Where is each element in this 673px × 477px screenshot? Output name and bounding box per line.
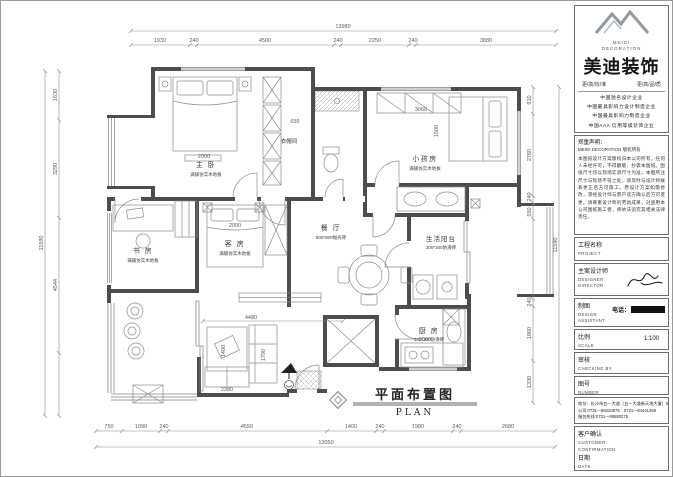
number-label-en: NUMBER [578,390,599,396]
phone-label: 电话： [612,305,630,314]
svg-text:910: 910 [527,95,533,104]
brand-en-line2: DECORATION [602,46,642,51]
room-cloak: 衣帽间 [281,137,298,145]
credential-line: 中国AAA 信用等级装饰企业 [578,122,665,131]
credentials-list: 中国驰名设计企业 中国最具影响力设计制造企业 中国最具影响力制造企业 中国AAA… [578,91,665,133]
dim-guest-bed: 2000 [229,223,241,229]
dim-master-bed: 2000 [198,154,210,160]
dim-rug: 1400 [221,345,227,357]
plan-title-cn: 平面布置图 [375,387,455,403]
checking-label-cn: 审核 [578,355,612,364]
dim-sofa: 2380 [221,387,233,393]
room-kids: 小孩房 [412,154,438,163]
scale-value: 1:100 [644,336,659,342]
scale-label-cn: 比例 [578,332,594,341]
walls [107,67,554,397]
dining-table [338,245,412,305]
dim-kitchen-depth: 900 [467,336,473,345]
windows [108,68,554,401]
svg-text:240: 240 [408,38,417,44]
svg-text:240: 240 [452,424,461,430]
cloak-closet [263,77,281,185]
svg-text:750: 750 [104,424,113,430]
room-dining-note: 800*800抛光砖 [316,234,347,241]
room-study-note: 满铺仿实木地板 [127,257,159,264]
address-line1: 地址：长沙市五一大道（五一大道新天地大厦）5楼 [578,401,665,408]
declaration-title: 郑重声明： [578,138,665,146]
bath2-door [325,179,343,197]
declaration-body: 本图纸设计方案版权归本公司所有，任何人未经许可，不得翻版、抄袭本图纸。图纸尺寸均… [578,155,665,221]
room-kitchen: 厨 房 [419,326,439,335]
svg-text:240: 240 [189,38,198,44]
dim-left-total: 11590 [39,236,45,251]
svg-text:240: 240 [375,424,384,430]
master-bed [159,77,251,161]
svg-text:1630: 1630 [53,89,59,101]
balcony-door [385,243,409,267]
designer-signature [625,268,665,292]
svg-text:2680: 2680 [502,424,514,430]
entry-marker [281,363,297,390]
meidi-logo-mountain-icon [592,9,652,35]
svg-text:4550: 4550 [241,424,253,430]
date-label-en: DATE [578,464,665,470]
declaration-brand: MEIDI DECORATION 版权所有 [578,147,665,153]
credential-line: 中国装修质量示范工（PI）类企业 [578,131,665,133]
address-line3: 服务热线:0731—88890275 [578,414,665,421]
study-door [115,199,139,223]
drawing-sheet: 13980 1930 240 4500 240 2250 240 3880 75… [0,0,673,477]
scale-label-en: SCALE [578,343,594,349]
number-label-cn: 图号 [578,379,599,388]
tagline-left: 更/高/标/准 [582,81,606,88]
room-master: 主 卧 [196,160,216,169]
phone-redaction-bar [631,306,665,313]
svg-text:240: 240 [527,297,533,306]
svg-text:240: 240 [159,424,168,430]
room-master-note: 满铺仿实木地板 [190,171,222,178]
field-number: 图号 NUMBER [574,376,669,396]
customer-label-en: CUSTOMER CONFIRMATION [578,440,665,453]
project-label-cn: 工程名称 [578,240,602,249]
svg-text:1400: 1400 [345,424,357,430]
room-service: 生活阳台 [426,234,456,243]
brand-tagline: 更/高/标/准 更/高/品/质 [578,81,665,88]
svg-text:2760: 2760 [527,149,533,161]
room-guest-note: 满铺仿实木地板 [219,250,251,257]
svg-text:240: 240 [527,192,533,201]
svg-text:3880: 3880 [480,38,492,44]
elevator-shaft [327,319,375,363]
dim-kids-bed: 3060 [415,107,427,113]
bath-door [373,215,395,237]
room-service-note: 300*300防滑砖 [426,244,457,251]
brand-en-line1: MEIDI [613,40,631,45]
study-desk [113,201,197,248]
credential-line: 中国最具影响力设计制造企业 [578,103,665,112]
room-study: 书 房 [133,246,153,255]
logo-box: MEIDI DECORATION 美迪装饰 更/高/标/准 更/高/品/质 中国… [574,5,669,133]
dim-cloak: 655 [290,119,299,125]
phone-row: 电话： [612,305,665,314]
doors [115,161,419,389]
credential-line: 中国最具影响力制造企业 [578,112,665,121]
room-kitchen-note: 300*300防滑砖 [414,336,445,343]
svg-text:1090: 1090 [135,424,147,430]
svg-text:550: 550 [527,207,533,216]
dim-top-total: 13980 [335,24,350,30]
title-block-sidebar: MEIDI DECORATION 美迪装饰 更/高/标/准 更/高/品/质 中国… [574,5,669,471]
dim-bottom-total: 13050 [318,440,333,446]
bath-vanity [397,187,465,211]
master-door [233,173,257,197]
guest-bed [207,205,287,267]
field-project: 工程名称 PROJECT [574,237,669,260]
draftsman-label-cn: 制图 [578,301,605,310]
kids-bed [377,93,507,161]
svg-text:4544: 4544 [53,279,59,291]
credential-line: 中国驰名设计企业 [578,94,665,103]
svg-text:4500: 4500 [259,38,271,44]
title-ornament [330,392,347,409]
brand-en: MEIDI DECORATION [578,40,665,52]
tagline-right: 更/高/品/质 [637,81,661,88]
date-label-cn: 日期 [578,453,665,462]
svg-text:240: 240 [333,38,342,44]
svg-text:1930: 1930 [154,38,166,44]
brand-cn: 美迪装饰 [578,53,665,79]
customer-label-cn: 客户确认 [578,429,665,438]
svg-text:1980: 1980 [412,424,424,430]
address-box: 地址：长沙市五一大道（五一大道新天地大厦）5楼 公司:0731—88220878… [574,397,669,424]
hatch-areas [297,91,359,389]
floor-plan: 13980 1930 240 4500 240 2250 240 3880 75… [1,1,574,477]
svg-text:2250: 2250 [369,38,381,44]
room-dining: 餐 厅 [321,223,341,232]
designer-label-en: DESIGNER DIRECTOR [578,277,608,290]
checking-label-en: CHECKING BY [578,366,612,372]
field-draftsman: 制图 DESIGN ASSISTANT 电话： [574,298,669,327]
laundry-appliances [413,275,457,299]
project-label-en: PROJECT [578,251,602,257]
customer-confirmation-box: 客户确认 CUSTOMER CONFIRMATION 日期 DATE [574,426,669,471]
balcony-chairs [124,303,144,359]
plan-title-en: PLAN [396,408,434,418]
room-kids-note: 满铺仿实木地板 [409,165,441,172]
svg-text:1860: 1860 [527,327,533,339]
designer-label-cn: 主案设计师 [578,266,608,275]
svg-text:1330: 1330 [527,376,533,388]
declaration-box: 郑重声明： MEIDI DECORATION 版权所有 本图纸设计方案版权归本公… [574,135,669,236]
field-checking: 审核 CHECKING BY [574,352,669,373]
dim-right-total: 11590 [553,238,559,253]
dim-sofa-len: 1790 [261,349,267,361]
field-designer: 主案设计师 DESIGNER DIRECTOR [574,263,669,296]
dim-living-width: 4480 [245,315,257,321]
draftsman-label-en: DESIGN ASSISTANT [578,312,605,325]
dim-kids-bed-depth: 1500 [434,125,440,137]
field-scale: 比例 SCALE 1:100 [574,329,669,350]
room-guest: 客 房 [225,239,245,248]
svg-text:3290: 3290 [53,163,59,175]
plan-title-block: 平面布置图 PLAN [330,387,477,418]
kids-door [375,161,399,185]
